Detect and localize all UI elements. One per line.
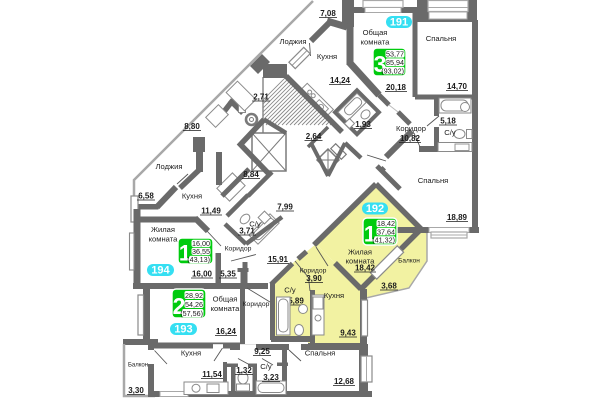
- svg-text:3,23: 3,23: [263, 373, 279, 382]
- svg-text:С/у: С/у: [444, 128, 456, 137]
- svg-text:5,18: 5,18: [440, 117, 456, 126]
- svg-text:Спальня: Спальня: [418, 176, 449, 185]
- svg-text:(57,56): (57,56): [180, 309, 203, 318]
- svg-text:8,80: 8,80: [184, 122, 200, 131]
- svg-text:3,71: 3,71: [239, 227, 255, 236]
- svg-text:15,91: 15,91: [268, 255, 289, 264]
- svg-text:192: 192: [366, 203, 384, 215]
- svg-text:20,18: 20,18: [386, 83, 407, 92]
- svg-text:194: 194: [151, 265, 170, 277]
- svg-text:1,93: 1,93: [355, 120, 371, 129]
- svg-text:28,92: 28,92: [185, 291, 203, 300]
- svg-text:Общая: Общая: [363, 28, 388, 37]
- svg-text:Спальня: Спальня: [426, 34, 457, 43]
- svg-text:Коридор: Коридор: [243, 301, 270, 308]
- svg-text:2,71: 2,71: [253, 93, 269, 102]
- svg-text:14,70: 14,70: [447, 82, 468, 91]
- svg-text:16,00: 16,00: [192, 270, 213, 279]
- svg-text:Коридор: Коридор: [396, 124, 426, 133]
- svg-text:12,68: 12,68: [334, 377, 355, 386]
- svg-text:комната: комната: [211, 304, 240, 313]
- svg-text:С/у: С/у: [260, 362, 272, 371]
- svg-text:Кухня: Кухня: [182, 192, 202, 201]
- svg-text:6,58: 6,58: [138, 192, 154, 201]
- svg-text:10,82: 10,82: [400, 134, 421, 143]
- svg-text:комната: комната: [149, 235, 178, 244]
- svg-text:Кухня: Кухня: [181, 349, 201, 358]
- svg-text:(41,32): (41,32): [372, 236, 395, 245]
- svg-text:Балкон: Балкон: [128, 363, 148, 369]
- svg-text:Лоджия: Лоджия: [280, 37, 307, 46]
- svg-text:18,42: 18,42: [355, 264, 376, 273]
- svg-text:193: 193: [174, 324, 192, 336]
- svg-text:8,84: 8,84: [243, 170, 259, 179]
- svg-text:Жилая: Жилая: [151, 225, 175, 234]
- svg-text:11,54: 11,54: [202, 370, 222, 379]
- svg-text:Жилая: Жилая: [348, 248, 372, 257]
- svg-text:14,24: 14,24: [330, 76, 351, 85]
- svg-text:3,90: 3,90: [306, 274, 322, 283]
- svg-text:54,26: 54,26: [185, 300, 203, 309]
- svg-text:7,08: 7,08: [320, 9, 336, 18]
- svg-text:(43,13): (43,13): [187, 255, 210, 264]
- svg-text:С/у: С/у: [284, 286, 296, 295]
- svg-text:Общая: Общая: [213, 295, 238, 304]
- svg-text:Кухня: Кухня: [317, 52, 337, 61]
- svg-text:Лоджия: Лоджия: [156, 162, 183, 171]
- svg-text:2,64: 2,64: [306, 132, 322, 141]
- svg-text:комната: комната: [361, 38, 390, 47]
- svg-text:11,49: 11,49: [201, 207, 221, 216]
- svg-text:5,35: 5,35: [220, 270, 236, 279]
- svg-text:16,24: 16,24: [216, 327, 237, 336]
- svg-text:191: 191: [390, 17, 408, 29]
- svg-text:9,25: 9,25: [254, 347, 270, 356]
- svg-text:(93,02): (93,02): [381, 66, 404, 75]
- svg-text:Кухня: Кухня: [324, 291, 344, 300]
- svg-text:Спальня: Спальня: [305, 349, 336, 358]
- svg-text:3,30: 3,30: [128, 386, 144, 395]
- svg-text:Балкон: Балкон: [398, 258, 420, 265]
- svg-text:1,32: 1,32: [236, 366, 252, 375]
- svg-text:Коридор: Коридор: [225, 246, 252, 253]
- svg-text:3,68: 3,68: [381, 282, 397, 291]
- svg-text:9,43: 9,43: [340, 329, 356, 338]
- svg-text:7,99: 7,99: [277, 203, 293, 212]
- svg-text:18,89: 18,89: [447, 213, 468, 222]
